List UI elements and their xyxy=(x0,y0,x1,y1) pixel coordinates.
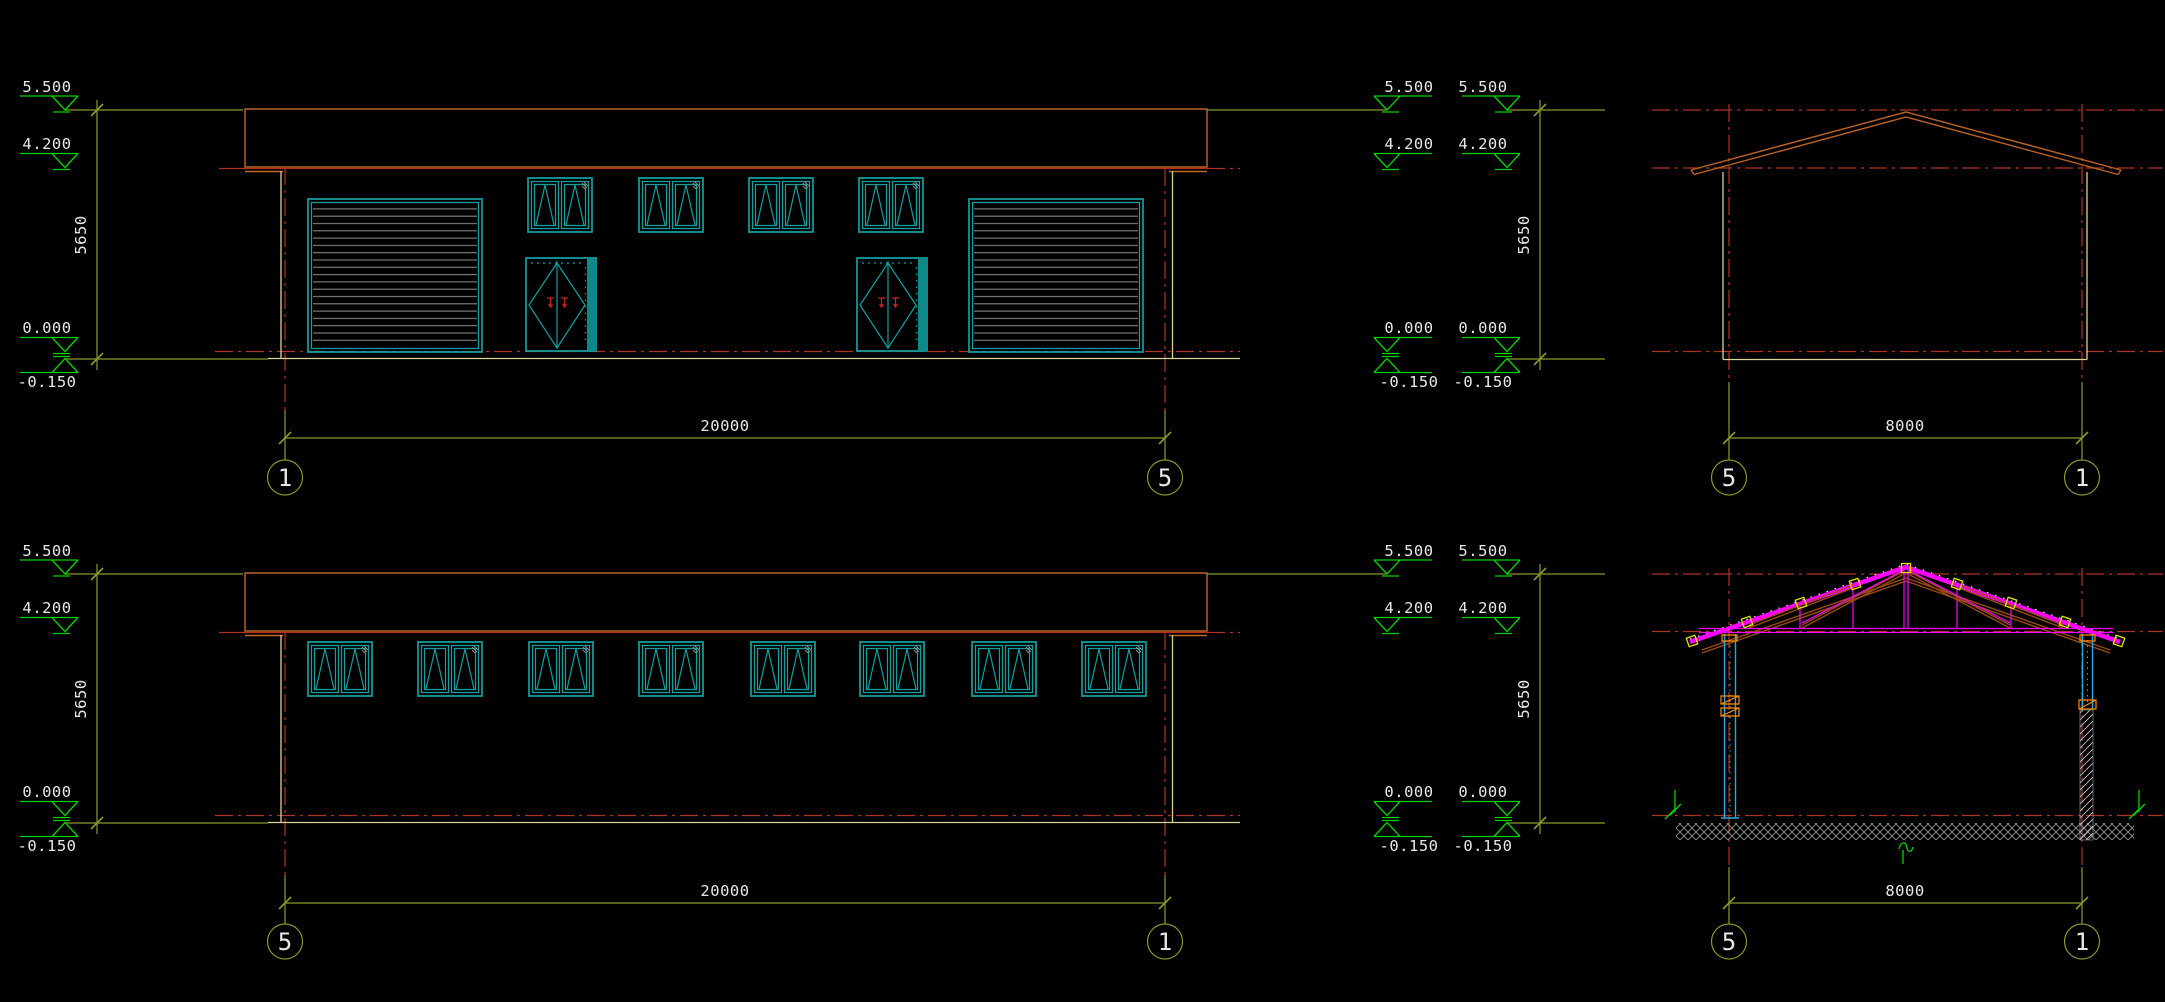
level-label: 5.500 xyxy=(22,78,71,96)
window-pair xyxy=(528,178,592,232)
window-pair xyxy=(972,642,1036,696)
front-elevation-view xyxy=(215,109,1240,410)
cad-drawing-canvas[interactable]: 20000 8000 20000 8000 5650 5650 5650 565… xyxy=(0,0,2165,1002)
wall-lines xyxy=(1723,172,2087,360)
level-label: 0.000 xyxy=(22,319,71,337)
dim-text-20000: 20000 xyxy=(700,882,749,900)
level-label: -0.150 xyxy=(18,837,77,855)
side-elevation-view xyxy=(1652,104,2163,382)
roof-truss xyxy=(1686,564,2124,654)
dim-text-8000: 8000 xyxy=(1885,882,1924,900)
window-pair xyxy=(751,642,815,696)
level-label: 4.200 xyxy=(1384,599,1433,617)
dim-text-5650: 5650 xyxy=(1515,215,1533,254)
window-pair xyxy=(749,178,813,232)
roller-shutter-door xyxy=(308,199,482,352)
level-label: 4.200 xyxy=(22,135,71,153)
level-label: 0.000 xyxy=(22,783,71,801)
double-door xyxy=(526,258,596,351)
grid-bubble-label: 5 xyxy=(1722,464,1736,492)
dim-text-5650: 5650 xyxy=(72,215,90,254)
window-pair xyxy=(639,178,703,232)
window-pair xyxy=(639,642,703,696)
grade-break-symbol xyxy=(2129,790,2145,819)
window-pair xyxy=(859,178,923,232)
dim-text-5650: 5650 xyxy=(72,679,90,718)
grid-bubble-label: 1 xyxy=(2075,928,2089,956)
truss-node-plates xyxy=(1686,564,2124,647)
section-view xyxy=(1652,564,2163,868)
level-label: 4.200 xyxy=(1458,135,1507,153)
grid-bubble-label: 1 xyxy=(2075,464,2089,492)
level-label: 4.200 xyxy=(1458,599,1507,617)
grid-bubble-label: 5 xyxy=(1722,928,1736,956)
level-label: 0.000 xyxy=(1384,319,1433,337)
gable-roof-outline xyxy=(1691,112,2121,175)
level-label: -0.150 xyxy=(1454,373,1513,391)
dim-text-8000: 8000 xyxy=(1885,417,1924,435)
level-label: 0.000 xyxy=(1458,783,1507,801)
grid-bubbles: 1 5 5 1 5 1 5 1 xyxy=(268,460,2100,959)
level-label: 0.000 xyxy=(1458,319,1507,337)
level-label: 5.500 xyxy=(1458,78,1507,96)
roller-shutter-door xyxy=(969,199,1143,352)
level-label: 5.500 xyxy=(1384,542,1433,560)
window-pair xyxy=(860,642,924,696)
level-label: 4.200 xyxy=(1384,135,1433,153)
level-label: 5.500 xyxy=(1384,78,1433,96)
wall-section-hatch xyxy=(2080,710,2093,840)
level-label: -0.150 xyxy=(1454,837,1513,855)
level-label: -0.150 xyxy=(18,373,77,391)
double-door xyxy=(857,258,927,351)
window-pair xyxy=(1082,642,1146,696)
ground-hatch xyxy=(1676,823,2134,840)
window-pair xyxy=(529,642,593,696)
grid-bubble-label: 5 xyxy=(278,928,292,956)
level-label: 5.500 xyxy=(22,542,71,560)
level-label: -0.150 xyxy=(1380,373,1439,391)
dim-text-20000: 20000 xyxy=(700,417,749,435)
window-pair xyxy=(418,642,482,696)
grade-break-symbol xyxy=(1665,790,1681,819)
grid-bubble-label: 5 xyxy=(1158,464,1172,492)
roof-band xyxy=(245,109,1207,167)
grid-bubble-label: 1 xyxy=(278,464,292,492)
roof-band xyxy=(245,573,1207,631)
level-label: 5.500 xyxy=(1458,542,1507,560)
drainage-symbol xyxy=(1899,843,1913,864)
level-label: 4.200 xyxy=(22,599,71,617)
level-label: 0.000 xyxy=(1384,783,1433,801)
grid-bubble-label: 1 xyxy=(1158,928,1172,956)
steel-column-left xyxy=(1721,634,1739,818)
dim-text-5650: 5650 xyxy=(1515,679,1533,718)
level-label: -0.150 xyxy=(1380,837,1439,855)
window-pair xyxy=(308,642,372,696)
rear-elevation-view xyxy=(215,573,1240,875)
